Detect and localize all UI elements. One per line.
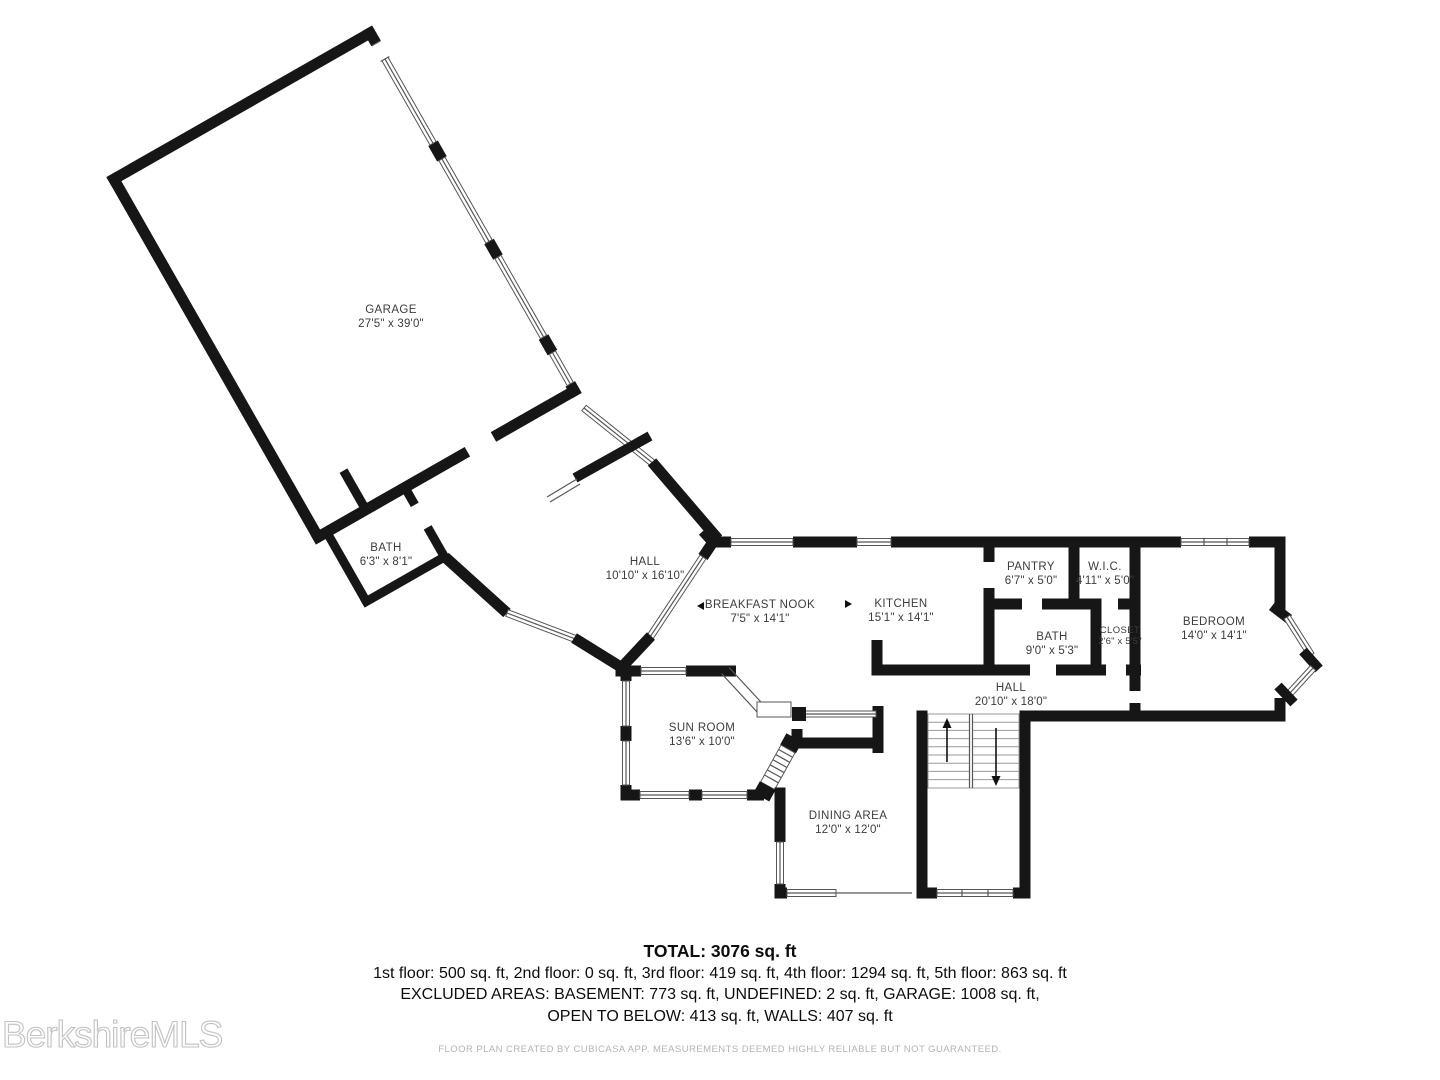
- room-label-hall-lower: HALL20'10" x 18'0": [975, 681, 1047, 709]
- room-label-garage: GARAGE27'5" x 39'0": [358, 303, 424, 331]
- room-label-dining-area: DINING AREA12'0" x 12'0": [809, 809, 888, 837]
- room-label-bath-garage: BATH6'3" x 8'1": [360, 541, 412, 569]
- floor-areas: 1st floor: 500 sq. ft, 2nd floor: 0 sq. …: [0, 963, 1440, 985]
- room-label-pantry: PANTRY6'7" x 5'0": [1005, 560, 1057, 588]
- excluded-areas-line1: EXCLUDED AREAS: BASEMENT: 773 sq. ft, UN…: [0, 984, 1440, 1006]
- room-label-kitchen: KITCHEN15'1" x 14'1": [868, 597, 934, 625]
- floor-plan-drawing: [0, 0, 1440, 1080]
- door-arrow-right: [845, 600, 852, 608]
- landing: [757, 702, 791, 717]
- floor-plan-page: GARAGE27'5" x 39'0" BATH6'3" x 8'1" HALL…: [0, 0, 1440, 1080]
- berkshire-mls-watermark: BerkshireMLS: [2, 1014, 222, 1056]
- total-area: TOTAL: 3076 sq. ft: [0, 941, 1440, 963]
- door-arrow-left: [697, 602, 704, 610]
- room-label-closet: CLOSET2'6" x 5'5": [1098, 625, 1142, 647]
- staircase: [917, 711, 1031, 899]
- room-label-bath-main: BATH9'0" x 5'3": [1026, 630, 1078, 658]
- room-label-sun-room: SUN ROOM13'6" x 10'0": [669, 721, 735, 749]
- room-label-breakfast-nook: BREAKFAST NOOK7'5" x 14'1": [705, 598, 815, 626]
- open-to-below: [792, 706, 884, 753]
- room-label-hall-upper: HALL10'10" x 16'10": [606, 555, 685, 583]
- room-label-bedroom: BEDROOM14'0" x 14'1": [1181, 615, 1247, 643]
- room-label-wic: W.I.C.4'11" x 5'0": [1076, 560, 1134, 588]
- dining-structure: [775, 788, 913, 899]
- bay-window: [1284, 615, 1314, 657]
- breezeway-structure: [445, 405, 718, 669]
